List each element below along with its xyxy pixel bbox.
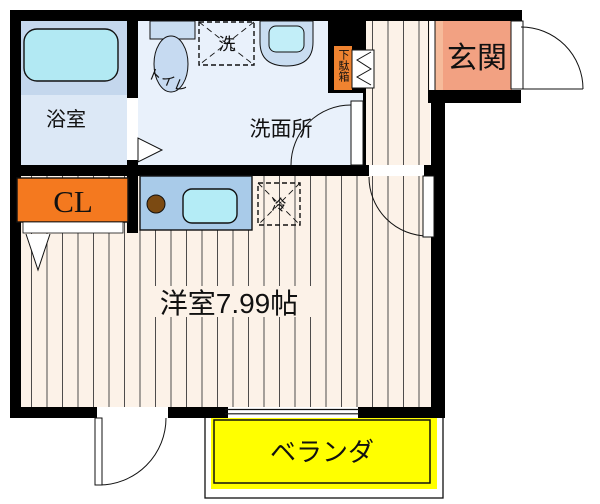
washbasin-inner [269, 26, 304, 52]
bathroom-label: 浴室 [46, 108, 86, 131]
hallway-floor [366, 21, 430, 176]
kitchen-sink [183, 189, 237, 223]
veranda-window-band [228, 407, 358, 418]
wall-bottom-left [10, 407, 97, 418]
wall-entrance-bottom [428, 90, 521, 103]
wall-hall-stub-right [424, 165, 433, 176]
wall-top [10, 10, 522, 21]
bathroom-door-opening [127, 98, 138, 160]
wall-washroom-bottom [138, 165, 363, 176]
bathtub [24, 29, 118, 81]
fridge-label: 冷 [271, 197, 286, 214]
floor-plan: 浴室 トイレ 洗 洗面所 下駄箱 玄関 CL 冷 洋室7.99帖 ベランダ [0, 0, 600, 504]
shoe-cabinet-label: 下駄箱 [337, 49, 350, 83]
bottom-door-arc [99, 418, 166, 485]
wall-bath-vert-top [127, 21, 138, 98]
bottom-door-leaf [95, 418, 102, 485]
veranda-label: ベランダ [270, 437, 374, 467]
washroom-door-leaf [351, 101, 363, 165]
wall-right [431, 93, 445, 418]
wall-bath-horiz [10, 165, 138, 176]
closet-label: CL [53, 184, 93, 219]
front-door-leaf [511, 21, 523, 89]
entrance-label: 玄関 [447, 42, 507, 75]
floor-plan-page: 浴室 トイレ 洗 洗面所 下駄箱 玄関 CL 冷 洋室7.99帖 ベランダ [0, 0, 600, 504]
closet-door [23, 222, 123, 233]
front-door-arc [521, 27, 583, 89]
washroom-label: 洗面所 [250, 118, 313, 141]
wall-hall-stub-left [363, 165, 369, 176]
room-door-leaf [423, 176, 434, 237]
room-door-opening [369, 165, 424, 176]
wall-bottom-mid [168, 407, 228, 418]
washer-label: 洗 [219, 35, 236, 54]
stove-burner [147, 195, 165, 213]
main-room-label: 洋室7.99帖 [160, 288, 299, 319]
entrance-step [435, 21, 443, 90]
bottom-door-opening [97, 407, 168, 418]
